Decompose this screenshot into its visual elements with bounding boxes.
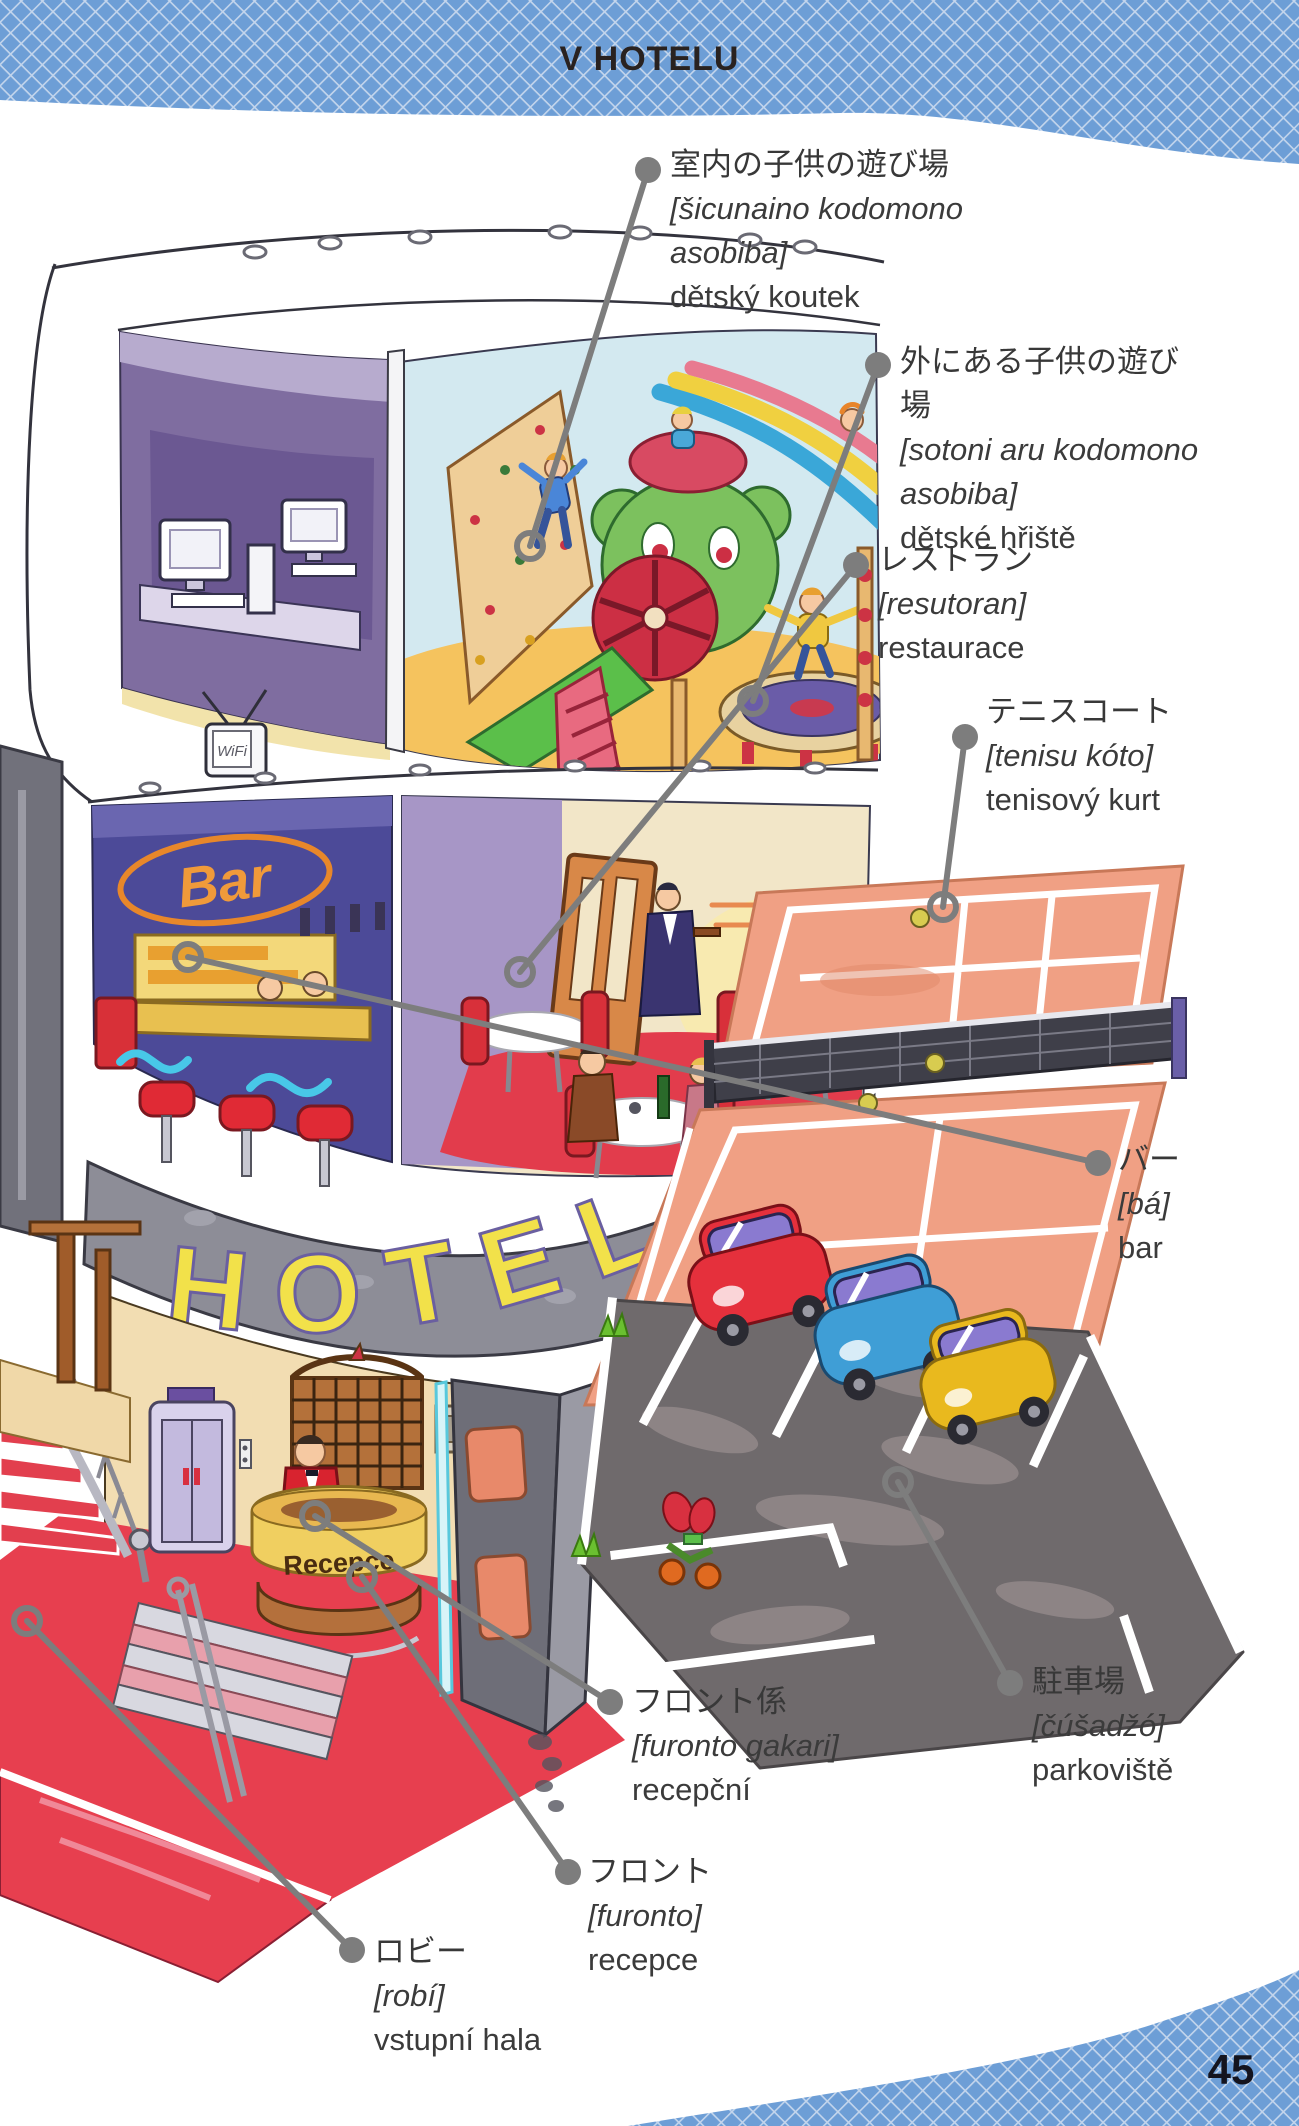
bar-japanese: バー xyxy=(1118,1138,1288,1182)
receptionist-pronunciation: [furonto gakari] xyxy=(632,1724,952,1768)
left-pillar xyxy=(0,746,62,1242)
callout-lobby: ロビー [robí] vstupní hala xyxy=(374,1930,654,2062)
receptionist-czech: recepční xyxy=(632,1768,952,1812)
lobby-czech: vstupní hala xyxy=(374,2018,654,2062)
callout-indoor-playroom: 室内の子供の遊び場 [šicunaino kodomono asobiba] d… xyxy=(670,143,1030,319)
page-title: V HOTELU xyxy=(0,40,1299,79)
parking-lot-japanese: 駐車場 xyxy=(1032,1660,1292,1704)
parking-lot-czech: parkoviště xyxy=(1032,1748,1292,1792)
parking-lot-pronunciation: [čúšadžó] xyxy=(1032,1704,1292,1748)
callout-outdoor-playground: 外にある子供の遊び場 [sotoni aru kodomono asobiba]… xyxy=(900,340,1200,560)
callout-parking-lot: 駐車場 [čúšadžó] parkoviště xyxy=(1032,1660,1292,1792)
computer-monitor-2 xyxy=(282,500,356,576)
book-page: WiFi xyxy=(0,0,1299,2126)
outdoor-playground-japanese: 外にある子供の遊び場 xyxy=(900,340,1200,428)
reception-desk-sign: Recepce xyxy=(283,1545,395,1581)
tennis-court-czech: tenisový kurt xyxy=(986,778,1286,822)
restaurant-pronunciation: [resutoran] xyxy=(878,582,1178,626)
top-band xyxy=(0,0,1299,164)
receptionist-japanese: フロント係 xyxy=(632,1680,952,1724)
lobby-japanese: ロビー xyxy=(374,1930,654,1974)
callout-receptionist: フロント係 [furonto gakari] recepční xyxy=(632,1680,952,1812)
outdoor-playground-pronunciation: [sotoni aru kodomono asobiba] xyxy=(900,428,1200,516)
computer-room xyxy=(120,332,392,760)
bar-neon-sign: Bar xyxy=(174,844,278,920)
bar-czech: bar xyxy=(1118,1226,1288,1270)
computer-monitor xyxy=(160,520,244,607)
callout-restaurant: レストラン [resutoran] restaurace xyxy=(878,538,1178,670)
lobby-pronunciation: [robí] xyxy=(374,1974,654,2018)
tennis-court-pronunciation: [tenisu kóto] xyxy=(986,734,1286,778)
window-mullion xyxy=(386,350,404,752)
bar-pronunciation: [bá] xyxy=(1118,1182,1288,1226)
reception-desk-japanese: フロント xyxy=(588,1850,868,1894)
indoor-playroom-pronunciation: [šicunaino kodomono asobiba] xyxy=(670,187,1030,275)
restaurant-japanese: レストラン xyxy=(878,538,1178,582)
indoor-playroom-japanese: 室内の子供の遊び場 xyxy=(670,143,1030,187)
tennis-court-japanese: テニスコート xyxy=(986,690,1286,734)
tv-screen-text: WiFi xyxy=(217,743,248,760)
computer-tower xyxy=(248,545,274,613)
callout-tennis-court: テニスコート [tenisu kóto] tenisový kurt xyxy=(986,690,1286,822)
restaurant-czech: restaurace xyxy=(878,626,1178,670)
callout-bar: バー [bá] bar xyxy=(1118,1138,1288,1270)
page-number: 45 xyxy=(1186,2046,1276,2094)
indoor-playroom-czech: dětský koutek xyxy=(670,275,1030,319)
bar-counter xyxy=(125,1002,370,1040)
